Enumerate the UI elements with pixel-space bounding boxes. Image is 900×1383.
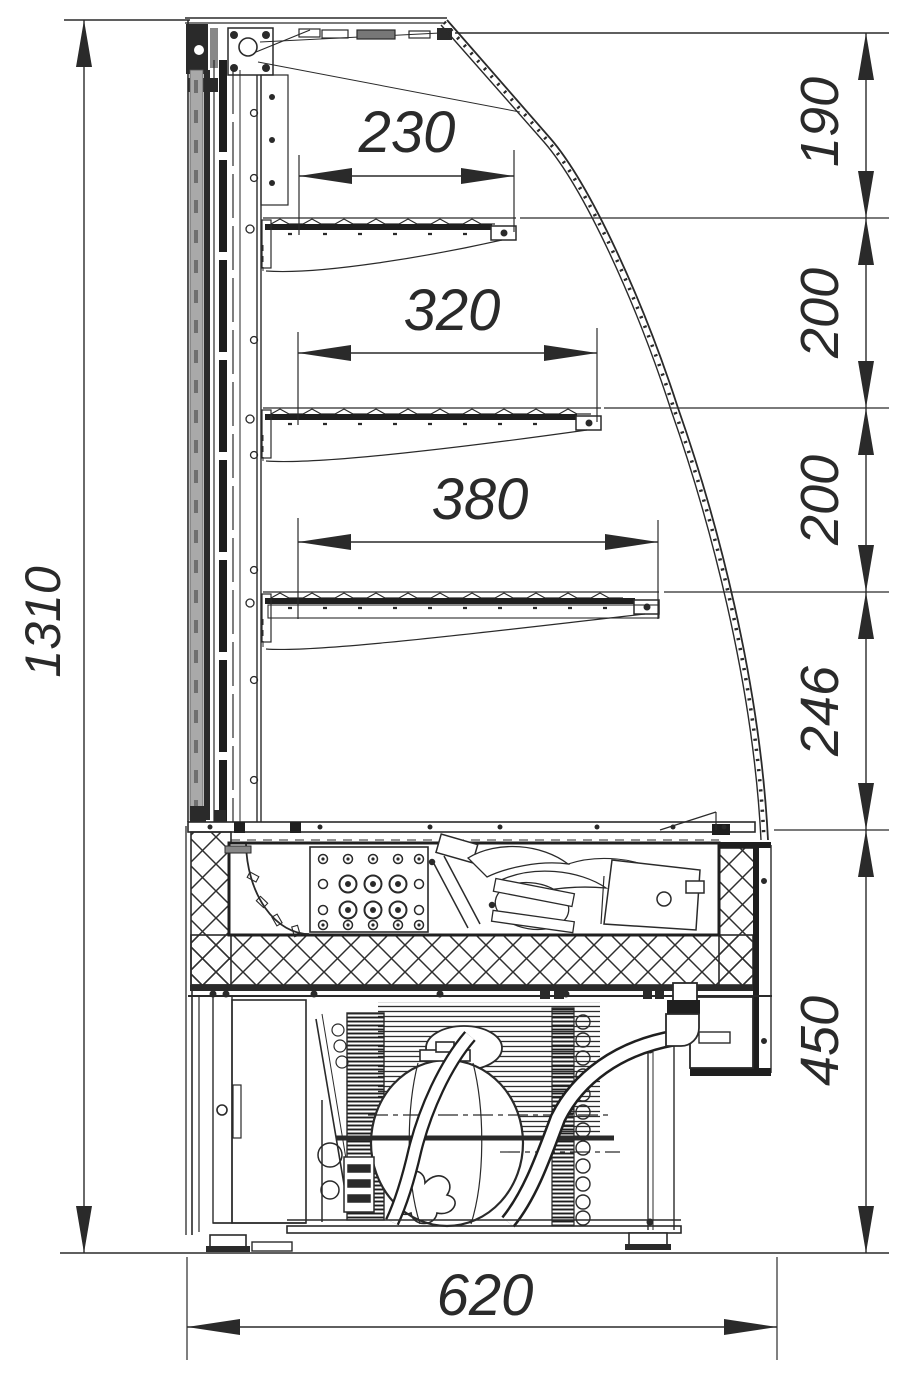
svg-text:230: 230	[358, 100, 456, 165]
svg-text:320: 320	[404, 278, 501, 343]
svg-text:200: 200	[790, 455, 850, 546]
svg-text:246: 246	[790, 665, 850, 757]
svg-text:620: 620	[437, 1263, 534, 1328]
svg-text:190: 190	[790, 77, 850, 167]
svg-text:200: 200	[790, 268, 850, 359]
svg-text:1310: 1310	[15, 566, 71, 677]
svg-text:450: 450	[790, 996, 850, 1086]
svg-text:380: 380	[432, 467, 529, 532]
